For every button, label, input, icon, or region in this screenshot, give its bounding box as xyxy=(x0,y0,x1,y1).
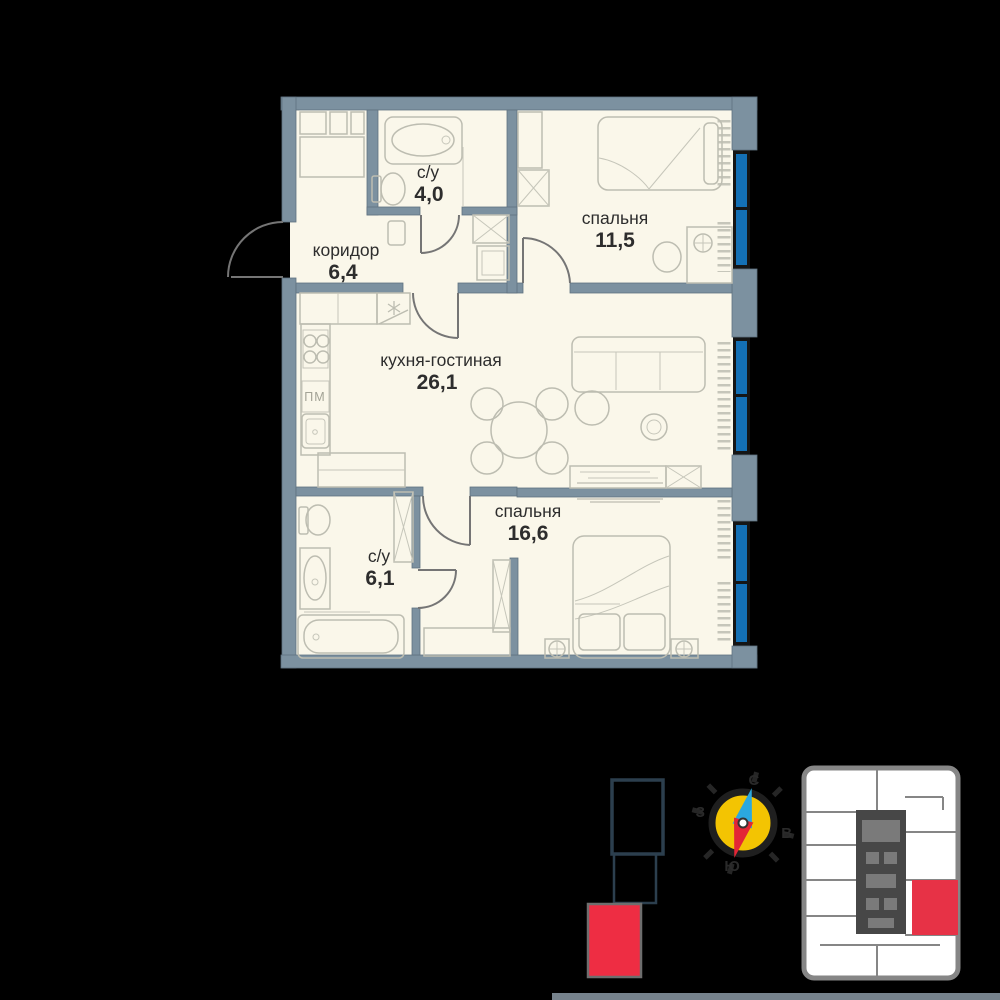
room-area-kitchen-living: 26,1 xyxy=(417,371,458,394)
floorplan-page: с/у 4,0 коридор 6,4 спальня 11,5 кухня-г… xyxy=(0,0,1000,1000)
keyplan-highlighted-unit xyxy=(912,880,958,935)
compass-east-label: В xyxy=(781,825,792,842)
dishwasher-label: ПМ xyxy=(304,390,325,404)
compass-icon: С В Ю З xyxy=(692,772,793,875)
compass-north-label: С xyxy=(748,772,759,789)
keyplan-core xyxy=(856,810,906,934)
building-section-diagram xyxy=(588,780,663,977)
room-label-bathroom-top: с/у xyxy=(417,162,440,182)
room-area-corridor: 6,4 xyxy=(328,261,358,284)
ground-strip xyxy=(552,993,1000,1000)
compass-south-label: Ю xyxy=(724,858,739,875)
apartment-plan: с/у 4,0 коридор 6,4 спальня 11,5 кухня-г… xyxy=(228,97,757,668)
room-area-bedroom-2: 16,6 xyxy=(508,522,549,545)
entrance-door-icon xyxy=(228,222,283,277)
room-area-bathroom-bottom: 6,1 xyxy=(365,567,395,590)
section-block-middle xyxy=(614,854,656,903)
compass-west-label: З xyxy=(696,804,705,821)
section-block-top xyxy=(612,780,663,854)
room-area-bathroom-top: 4,0 xyxy=(414,183,443,206)
room-label-bedroom-1: спальня xyxy=(582,208,648,228)
floor-key-plan xyxy=(804,768,958,978)
room-label-kitchen-living: кухня-гостиная xyxy=(380,350,501,370)
room-label-bathroom-bottom: с/у xyxy=(368,546,391,566)
room-area-bedroom-1: 11,5 xyxy=(595,229,635,252)
room-label-corridor: коридор xyxy=(313,240,380,260)
floorplan-canvas: с/у 4,0 коридор 6,4 спальня 11,5 кухня-г… xyxy=(0,0,1000,1000)
section-block-highlighted xyxy=(588,904,641,977)
windows xyxy=(733,150,750,646)
room-label-bedroom-2: спальня xyxy=(495,501,561,521)
